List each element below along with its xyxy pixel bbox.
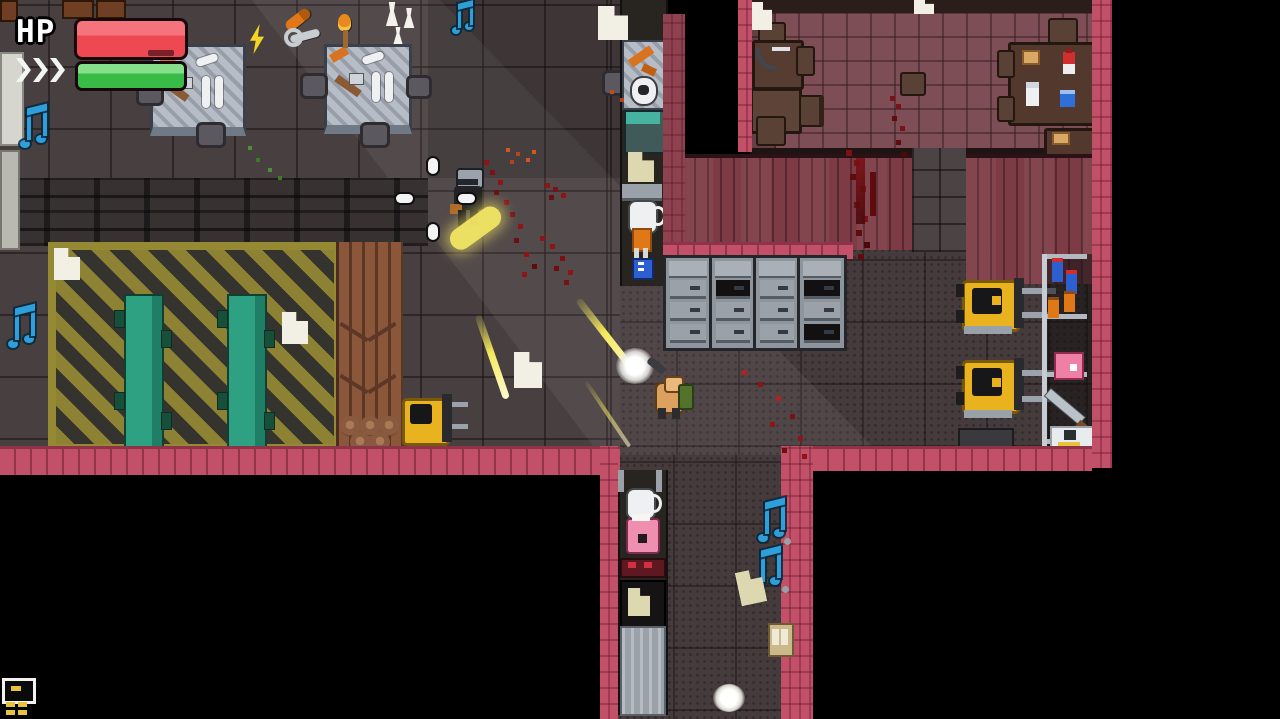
bottle-icon	[1066, 274, 1077, 294]
shelf-rail	[656, 470, 662, 492]
canister-leg	[634, 248, 639, 258]
spark-specks	[610, 90, 614, 94]
conveyor-arm	[217, 310, 228, 328]
pink-box	[1054, 352, 1084, 380]
conveyor-arm	[114, 392, 125, 410]
blue-box-label	[638, 268, 644, 271]
torch-handle-icon	[343, 30, 348, 48]
bone-icon	[202, 76, 210, 108]
maroon-wall	[683, 154, 912, 250]
bullet-projectile	[426, 156, 440, 176]
doorway-floor	[912, 148, 966, 252]
bone-icon	[372, 72, 380, 102]
green-specks	[248, 146, 252, 150]
pink-wall	[600, 446, 618, 719]
bread-icon	[1052, 132, 1070, 145]
kettle-handle	[646, 494, 662, 513]
conveyor-arm	[161, 412, 172, 430]
stool	[196, 122, 226, 148]
forklift	[956, 352, 1056, 438]
filing-cabinet	[663, 255, 713, 351]
red-item	[644, 562, 652, 568]
chair	[900, 72, 926, 96]
crate	[96, 0, 126, 19]
shelf	[622, 184, 662, 201]
conveyor-arm	[114, 310, 125, 328]
pink-wall	[0, 446, 620, 475]
blue-box-icon	[1060, 90, 1075, 107]
blood-splatter	[484, 160, 489, 165]
chair	[997, 96, 1015, 122]
hp-label: HP	[16, 14, 55, 50]
edge-shelf	[0, 150, 20, 250]
pink-box-label	[1070, 364, 1077, 371]
conveyor-belt	[124, 294, 164, 456]
filing-cabinet	[753, 255, 801, 351]
wrench-icon	[284, 28, 303, 47]
forklift	[402, 390, 472, 450]
package	[768, 623, 794, 657]
sign-box	[2, 678, 36, 704]
stool	[360, 122, 390, 148]
bullet-projectile	[456, 192, 477, 205]
spray-can-icon	[1048, 300, 1059, 318]
spray-can-icon	[1064, 294, 1075, 312]
spark-specks	[506, 148, 510, 152]
red-item	[628, 562, 636, 568]
blood-splatter	[545, 183, 550, 188]
jar-mark	[638, 534, 647, 543]
conveyor-arm	[264, 330, 275, 348]
music-note-icon	[758, 500, 786, 542]
washing-machine-door	[1064, 430, 1076, 440]
filing-cabinet	[797, 255, 847, 351]
shelf-rail	[618, 470, 624, 492]
music-note-icon	[20, 106, 48, 148]
bullet-projectile	[394, 192, 415, 205]
jar-lid	[632, 514, 650, 521]
blood-streak	[856, 158, 865, 224]
chair	[1048, 18, 1078, 44]
hp-bar-notch	[148, 50, 174, 56]
water-cooler-top	[626, 112, 660, 124]
red-shelf	[620, 558, 666, 578]
utensil-icon	[772, 47, 790, 51]
stool	[300, 73, 328, 99]
corridor-wall	[663, 14, 685, 246]
gray-pellet	[782, 586, 789, 593]
pink-wall	[1092, 0, 1112, 468]
hazard-dashes	[6, 702, 15, 707]
hazard-zone	[48, 242, 342, 452]
chair	[796, 46, 815, 76]
forklift	[956, 272, 1056, 342]
conveyor-arm	[264, 412, 275, 430]
toilet-bowl	[638, 85, 649, 95]
chair	[799, 95, 824, 127]
boost-bar	[75, 61, 187, 91]
chair	[756, 116, 786, 146]
ketchup-bottle-icon	[1063, 64, 1075, 74]
bone-icon	[385, 72, 393, 102]
blood-streak	[870, 172, 876, 216]
filing-cabinet	[709, 255, 757, 351]
pink-wall	[781, 446, 813, 719]
metal-shelf	[620, 626, 666, 716]
blood-splatter	[846, 150, 852, 156]
canister-leg	[643, 248, 648, 258]
chair	[997, 50, 1015, 78]
stool	[406, 75, 432, 99]
music-note-icon	[452, 2, 474, 34]
music-note-icon	[8, 306, 36, 348]
blood-splatter	[742, 370, 747, 375]
player-character	[640, 364, 696, 422]
conveyor-belt	[227, 294, 267, 456]
bullet-projectile	[426, 222, 440, 242]
cafeteria-wall	[738, 0, 752, 152]
game-viewport[interactable]: HP	[0, 0, 1280, 719]
torch-flame-icon	[338, 14, 351, 31]
gray-pellet	[784, 538, 791, 545]
crate	[62, 0, 94, 19]
vent-wall	[0, 178, 428, 246]
blood-splatter	[540, 236, 545, 241]
bottle-cap-icon	[1066, 48, 1072, 53]
white-orb	[713, 684, 745, 712]
bottle-icon	[1052, 262, 1063, 282]
bone-icon	[215, 76, 223, 108]
blood-splatter	[890, 96, 895, 101]
pink-wall	[813, 446, 1092, 471]
blue-box-label	[638, 262, 644, 265]
milk-bottle-icon	[1026, 82, 1039, 106]
conveyor-arm	[217, 392, 228, 410]
bread-icon	[1022, 50, 1040, 65]
hammer-icon	[349, 73, 364, 85]
conveyor-arm	[161, 330, 172, 348]
